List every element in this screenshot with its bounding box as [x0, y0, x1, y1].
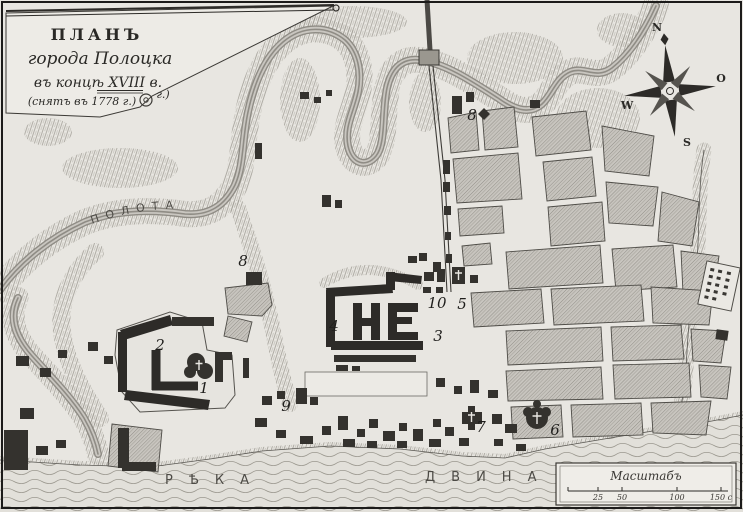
river-label-dvina-word1: РѢКА: [165, 473, 265, 488]
compass-label-O: O: [716, 72, 726, 85]
map-marker-8: 8: [467, 106, 477, 124]
compass-label-S: S: [683, 136, 691, 149]
cartouche-title-line1: ПЛАНЪ: [51, 25, 144, 44]
market-square: [305, 372, 427, 396]
scale-bar: Масштабъ 2550100150 с: [556, 463, 736, 505]
cartouche-title-line2: города Полоцка: [28, 49, 173, 69]
cartouche-title-line3-suffix: г.): [156, 88, 169, 101]
scale-tick-label: 50: [617, 493, 627, 502]
map-marker-3: 3: [433, 327, 443, 345]
map-marker-2: 2: [154, 336, 165, 354]
castle-wall-west: [118, 332, 127, 392]
map-marker-4: 4: [328, 317, 339, 335]
map-marker-1: 1: [199, 379, 209, 397]
map-marker-10: 10: [427, 294, 447, 312]
map-marker-7: 7: [476, 418, 486, 436]
bridge: [419, 50, 439, 65]
map-marker-6: 6: [550, 421, 560, 439]
compass-label-N: N: [652, 21, 662, 34]
historical-map-plan-of-polotsk: ПОЛОТА РѢКА ДВИНА: [0, 0, 743, 512]
map-marker-5: 5: [457, 295, 467, 313]
scale-tick-label: 25: [592, 493, 603, 502]
scale-tick-label: 100: [669, 493, 684, 502]
river-label-dvina-word2: ДВИНА: [425, 470, 552, 485]
collegium-south-wing: [334, 355, 416, 362]
cartouche-title-line4: (снятъ въ 1778 г.): [28, 95, 136, 108]
scale-title: Масштабъ: [609, 469, 681, 483]
map-marker-8: 8: [238, 252, 248, 270]
scale-tick-label: 150 с: [710, 493, 733, 502]
map-marker-9: 9: [281, 397, 291, 415]
map-canvas: ПОЛОТА РѢКА ДВИНА: [0, 0, 743, 512]
cartouche-title-line3: въ концѣ XVIII в.: [34, 75, 162, 91]
compass-label-W: W: [620, 99, 634, 112]
